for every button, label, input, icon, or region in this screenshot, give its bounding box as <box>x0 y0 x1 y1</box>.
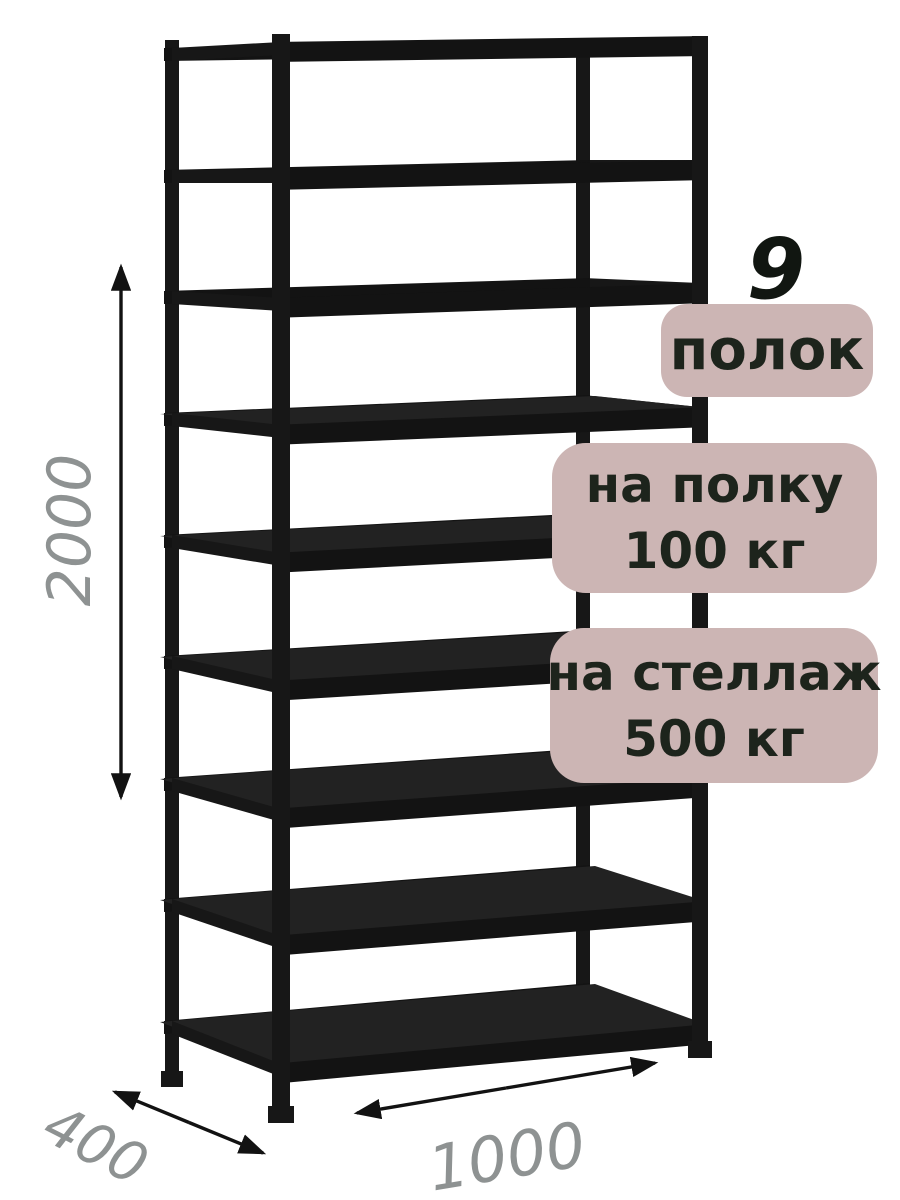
rack-left-side-beam-2 <box>172 170 281 183</box>
shelf-count-badge: полок <box>661 304 873 397</box>
product-image: 2000 400 1000 9 полок на полку 100 кг на… <box>0 0 900 1200</box>
rack-back-left-foot <box>161 1071 183 1087</box>
shelf-count-number: 9 <box>747 227 805 311</box>
width-dimension-arrow-a <box>357 1088 506 1113</box>
rack-front-left-post <box>272 34 290 1106</box>
shelf-load-value-line2: 100 кг <box>624 518 806 584</box>
shelf-load-badge: на полку 100 кг <box>552 443 877 593</box>
rack-front-right-foot <box>688 1041 712 1058</box>
rack-load-value-line2: 500 кг <box>623 706 805 772</box>
depth-dimension-arrow-a <box>115 1092 189 1123</box>
shelf-count-caption: полок <box>670 314 865 388</box>
shelf-load-text-line1: на полку <box>586 452 844 518</box>
rack-back-left-post <box>165 40 179 1071</box>
rack-load-text-line1: на стеллаж <box>547 640 882 706</box>
rack-front-left-foot <box>268 1106 294 1123</box>
shelving-rack-illustration <box>0 0 900 1200</box>
width-dimension-arrow-b <box>506 1063 655 1088</box>
depth-dimension-arrow-b <box>189 1123 263 1154</box>
rack-front-beam-1 <box>272 36 708 62</box>
rack-load-badge: на стеллаж 500 кг <box>550 628 878 783</box>
height-dimension-label: 2000 <box>40 454 100 607</box>
